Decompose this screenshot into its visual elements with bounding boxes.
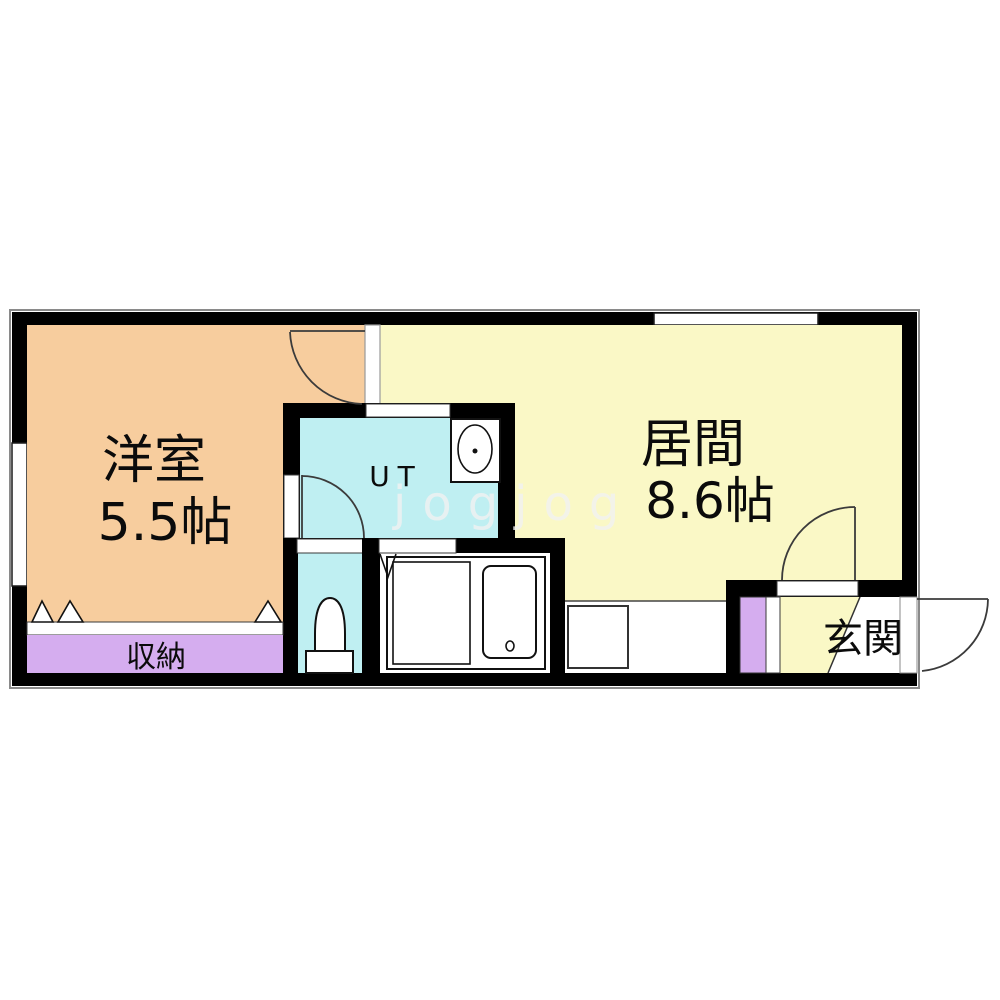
kitchen-sink-icon xyxy=(568,606,628,668)
bathroom-doorway xyxy=(379,539,456,553)
utility-doorway-left xyxy=(284,475,299,538)
bathtub-icon xyxy=(483,566,536,658)
front-door-arc xyxy=(922,599,988,671)
bedroom-label: 洋室 xyxy=(102,431,206,491)
living-size-label: 8.6帖 xyxy=(645,472,775,530)
floor-plan: jogjog 洋室 5.5帖 居間 8.6帖 UT 収納 玄関 xyxy=(0,0,1000,1000)
washbasin-drain-icon xyxy=(473,449,478,454)
entrance-wall-left xyxy=(726,580,740,686)
watermark-text: jogjog xyxy=(392,476,635,532)
room-divider-wall xyxy=(365,325,380,404)
living-label: 居間 xyxy=(641,415,745,475)
entrance-label: 玄関 xyxy=(823,616,903,662)
bathroom-block xyxy=(362,538,565,686)
utility-doorway-top xyxy=(366,404,450,417)
window-top xyxy=(654,313,818,325)
toilet-doorway xyxy=(297,539,363,553)
utility-label: UT xyxy=(369,460,423,493)
washbasin xyxy=(451,419,500,482)
toilet-bowl-icon xyxy=(315,598,345,652)
window-left xyxy=(12,443,27,586)
shoe-cabinet xyxy=(740,597,766,673)
bedroom-size-label: 5.5帖 xyxy=(98,493,233,553)
toilet-tank-icon xyxy=(306,651,353,673)
closet-door-track xyxy=(27,622,283,635)
floor-plan-page: jogjog 洋室 5.5帖 居間 8.6帖 UT 収納 玄関 xyxy=(0,0,1000,1000)
living-doorway xyxy=(777,581,858,596)
entrance-cabinet-strip xyxy=(766,597,780,673)
closet-label: 収納 xyxy=(126,640,186,675)
kitchen-area xyxy=(565,601,726,673)
